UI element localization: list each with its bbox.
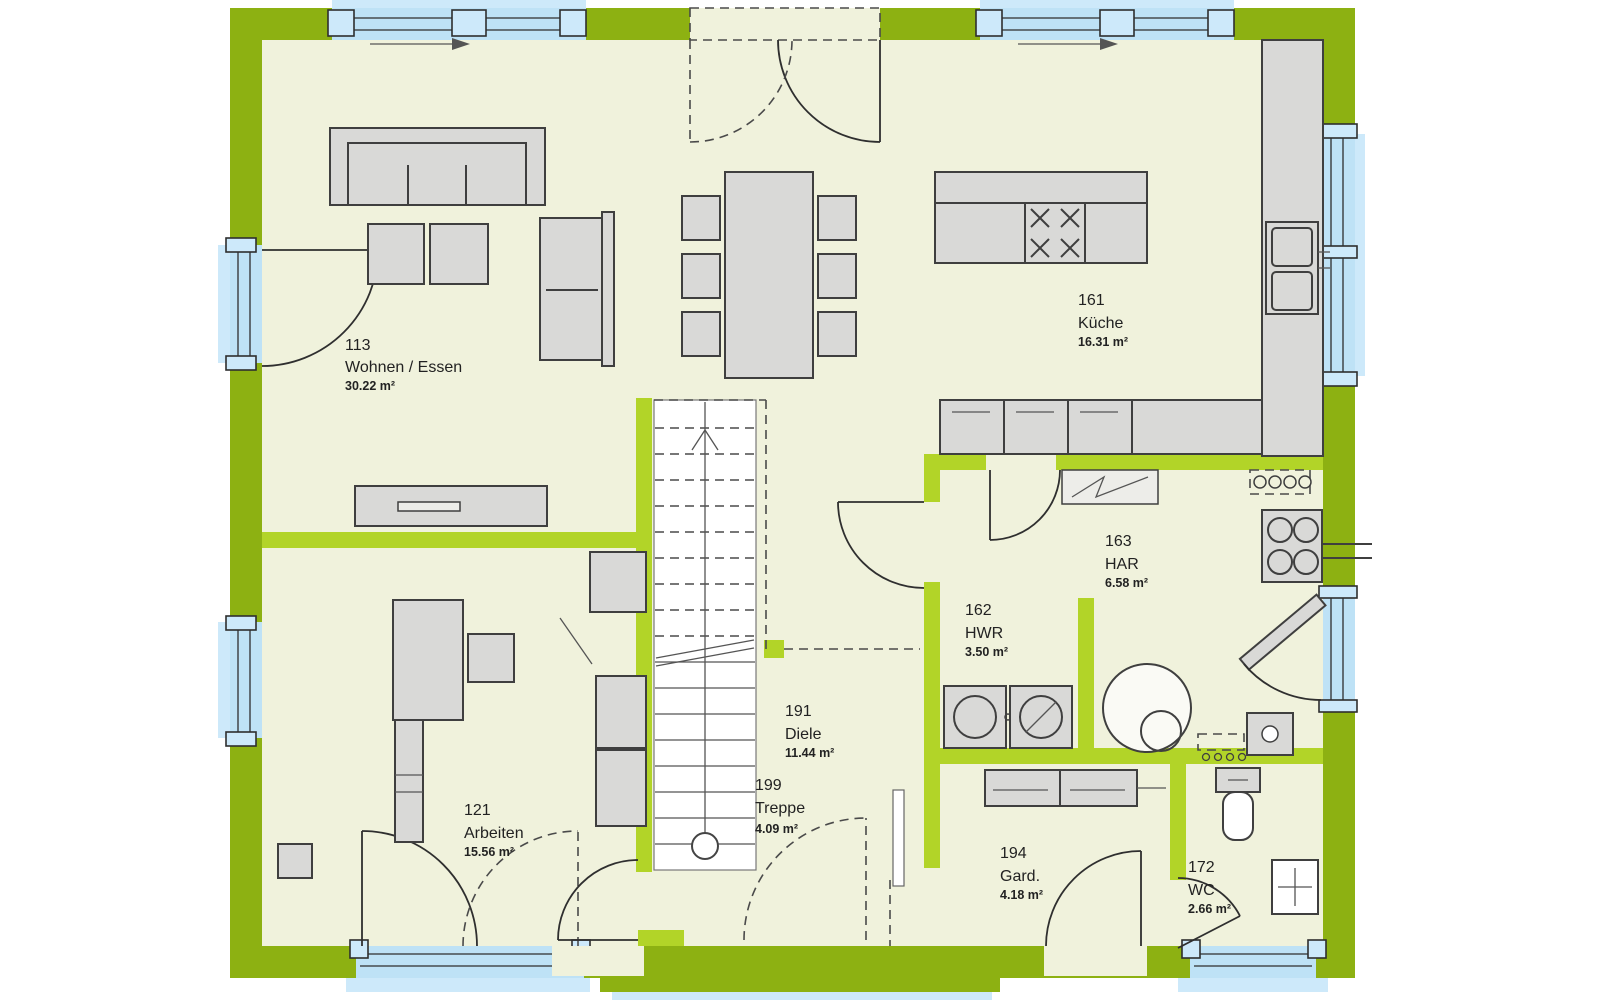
room-area: 4.09 m² bbox=[755, 822, 798, 836]
dining-table bbox=[725, 172, 813, 378]
wall-gard-wc bbox=[1170, 764, 1186, 880]
column-marker bbox=[764, 640, 784, 658]
top-entry-opening bbox=[690, 8, 880, 40]
chair bbox=[818, 254, 856, 298]
room-name: HAR bbox=[1105, 556, 1139, 573]
room-area: 16.31 m² bbox=[1078, 335, 1128, 349]
room-number: 163 bbox=[1105, 533, 1132, 550]
kitchen-counter-south bbox=[940, 400, 1262, 454]
gard-door-opening bbox=[1044, 946, 1147, 976]
floor-plan-page: 113 Wohnen / Essen 30.22 m² 161 Küche 16… bbox=[0, 0, 1600, 1000]
room-area: 11.44 m² bbox=[785, 746, 834, 760]
room-number: 194 bbox=[1000, 845, 1027, 862]
room-number: 161 bbox=[1078, 292, 1105, 309]
dining-furniture bbox=[682, 172, 856, 378]
window-wc-bottom bbox=[1178, 940, 1328, 992]
sofa bbox=[330, 128, 545, 205]
room-area: 15.56 m² bbox=[464, 845, 514, 859]
desk-chair bbox=[468, 634, 514, 682]
electrical-panel bbox=[1062, 470, 1158, 504]
floor-plan-drawing: 113 Wohnen / Essen 30.22 m² 161 Küche 16… bbox=[0, 0, 1600, 1000]
shelf bbox=[596, 750, 646, 826]
room-name: Treppe bbox=[755, 800, 805, 817]
chair bbox=[682, 312, 720, 356]
hot-water-tank bbox=[1103, 664, 1191, 752]
room-number: 121 bbox=[464, 802, 491, 819]
terrace-door-left bbox=[218, 238, 262, 370]
toilet-bowl bbox=[1223, 792, 1253, 840]
armchair bbox=[430, 224, 488, 284]
porch-sill bbox=[612, 992, 992, 1000]
chair bbox=[818, 196, 856, 240]
room-number: 172 bbox=[1188, 859, 1215, 876]
room-number: 191 bbox=[785, 703, 812, 720]
room-name: Wohnen / Essen bbox=[345, 359, 462, 376]
window-left-arbeiten bbox=[218, 616, 262, 746]
room-number: 199 bbox=[755, 777, 782, 794]
wall-diele-east-b bbox=[924, 582, 940, 868]
room-name: WC bbox=[1188, 882, 1215, 899]
room-name: Küche bbox=[1078, 315, 1123, 332]
armchair bbox=[368, 224, 424, 284]
chair bbox=[682, 196, 720, 240]
room-number: 113 bbox=[345, 337, 371, 354]
heating-manifold bbox=[1262, 510, 1372, 582]
stair-walk-line-start bbox=[692, 833, 718, 859]
room-name: Arbeiten bbox=[464, 825, 524, 842]
wall-living-arbeiten bbox=[262, 532, 652, 548]
room-area: 6.58 m² bbox=[1105, 576, 1148, 590]
wall-hwr-har bbox=[1078, 598, 1094, 748]
room-name: Diele bbox=[785, 726, 822, 743]
room-area: 3.50 m² bbox=[965, 645, 1008, 659]
room-area: 30.22 m² bbox=[345, 379, 395, 393]
chair bbox=[818, 312, 856, 356]
desk-cabinet bbox=[395, 720, 423, 842]
entrance-door-opening bbox=[552, 946, 644, 976]
entrance-pillar bbox=[638, 930, 684, 946]
entrance-porch bbox=[600, 946, 1000, 992]
wall-diele-east-a bbox=[924, 454, 940, 502]
shelf bbox=[596, 676, 646, 748]
shelf bbox=[590, 552, 646, 612]
room-name: Gard. bbox=[1000, 868, 1040, 885]
desk bbox=[393, 600, 463, 720]
room-number: 162 bbox=[965, 602, 992, 619]
wall-left bbox=[230, 8, 262, 978]
room-area: 2.66 m² bbox=[1188, 902, 1231, 916]
corner-cabinet bbox=[278, 844, 312, 878]
chair bbox=[682, 254, 720, 298]
room-name: HWR bbox=[965, 625, 1003, 642]
room-area: 4.18 m² bbox=[1000, 888, 1043, 902]
radiator bbox=[893, 790, 904, 886]
window-right-kitchen bbox=[1319, 124, 1365, 386]
